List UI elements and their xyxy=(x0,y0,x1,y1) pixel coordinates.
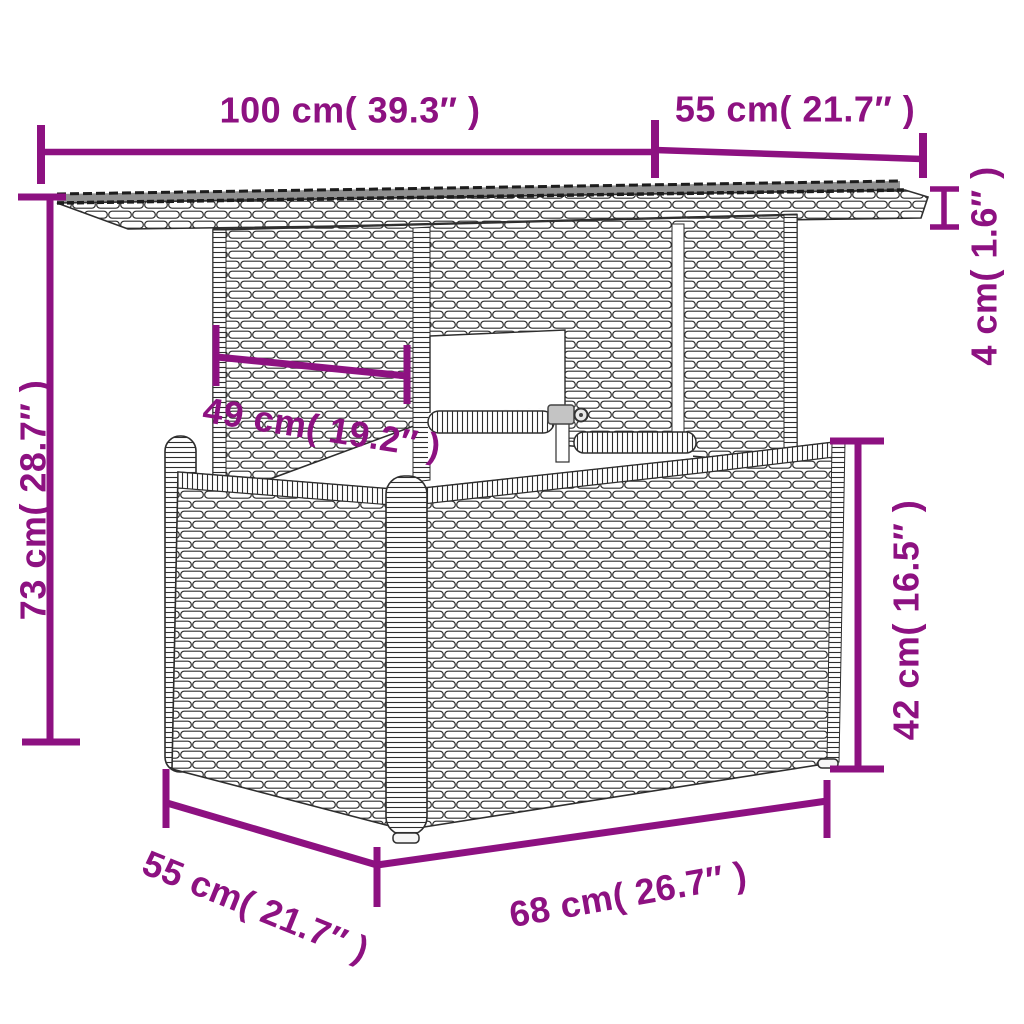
connector-support xyxy=(556,422,569,462)
dim-thickness-bracket xyxy=(930,189,959,227)
rolled-beam-right xyxy=(574,432,696,453)
dim-thickness-label: 4 cm( 1.6″ ) xyxy=(964,166,1005,365)
base-front-foot xyxy=(393,833,419,843)
table-illustration xyxy=(57,181,928,843)
pedestal-window-opening xyxy=(430,330,565,414)
pedestal-corner-slit xyxy=(672,224,684,439)
dim-base-width-label: 68 cm( 26.7″ ) xyxy=(506,853,750,935)
dimension-diagram-canvas: 100 cm( 39.3″ ) 55 cm( 21.7″ ) 4 cm( 1.6… xyxy=(0,0,1024,1024)
dim-base-height-label: 42 cm( 16.5″ ) xyxy=(886,500,927,740)
storage-base xyxy=(165,436,845,843)
product-dimension-svg: 100 cm( 39.3″ ) 55 cm( 21.7″ ) 4 cm( 1.6… xyxy=(0,0,1024,1024)
dim-height-label: 73 cm( 28.7″ ) xyxy=(13,380,54,620)
base-front-corner-post xyxy=(386,476,427,835)
pedestal-far-right-rolled-edge xyxy=(784,215,797,457)
dim-base-depth-label: 55 cm( 21.7″ ) xyxy=(137,842,375,970)
dim-top-width-label: 100 cm( 39.3″ ) xyxy=(220,90,481,131)
dim-top-depth-line xyxy=(655,133,923,178)
metal-ring-center xyxy=(579,413,583,417)
base-right-face xyxy=(405,441,843,830)
dim-top-depth-label: 55 cm( 21.7″ ) xyxy=(675,89,915,130)
metal-bracket xyxy=(548,405,574,424)
rolled-beam-left xyxy=(428,411,554,433)
base-left-face xyxy=(172,472,405,830)
